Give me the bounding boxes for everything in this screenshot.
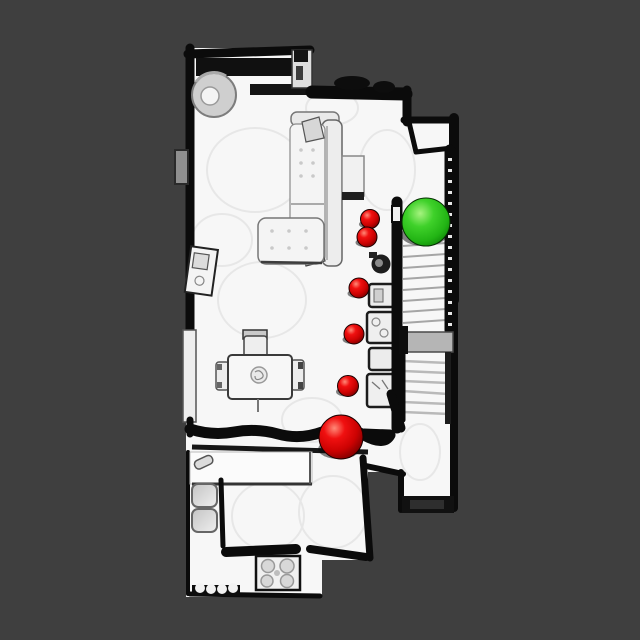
goal-sphere xyxy=(402,198,450,246)
round-chair xyxy=(192,73,236,117)
waypoint-sphere xyxy=(361,210,380,229)
waypoint-sphere xyxy=(319,415,363,459)
waypoint-sphere xyxy=(344,324,364,344)
sink-basin-top xyxy=(192,484,217,507)
sink-basin-bottom xyxy=(192,509,217,532)
render-viewport xyxy=(0,0,640,640)
floor-plan xyxy=(0,0,640,640)
side-table xyxy=(342,156,364,196)
waypoint-sphere xyxy=(357,227,377,247)
waypoint-sphere xyxy=(338,376,359,397)
wall-shelf xyxy=(185,246,218,295)
left-door xyxy=(183,330,196,422)
window-bay xyxy=(175,150,188,184)
stair-landing xyxy=(402,332,453,352)
waypoint-sphere xyxy=(349,278,369,298)
ottoman xyxy=(258,218,324,264)
